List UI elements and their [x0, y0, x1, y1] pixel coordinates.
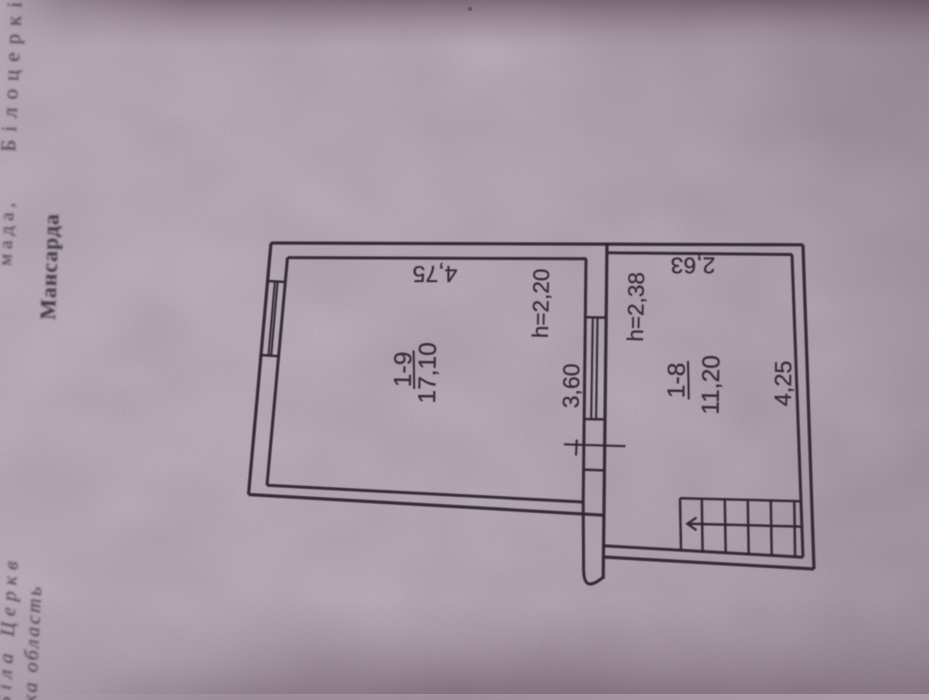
svg-text:1-8: 1-8: [663, 362, 691, 398]
svg-text:h=2,38: h=2,38: [623, 272, 649, 342]
svg-text:17,10: 17,10: [414, 342, 442, 404]
svg-text:мада,: мада,: [0, 197, 19, 266]
svg-text:11,20: 11,20: [697, 355, 725, 415]
svg-text:Мансарда: Мансарда: [35, 213, 64, 321]
svg-text:4,25: 4,25: [770, 360, 797, 406]
svg-text:3,60: 3,60: [558, 363, 585, 408]
svg-text:4,75: 4,75: [413, 261, 458, 287]
svg-text:h=2,20: h=2,20: [528, 268, 554, 338]
svg-text:2,63: 2,63: [671, 253, 716, 279]
